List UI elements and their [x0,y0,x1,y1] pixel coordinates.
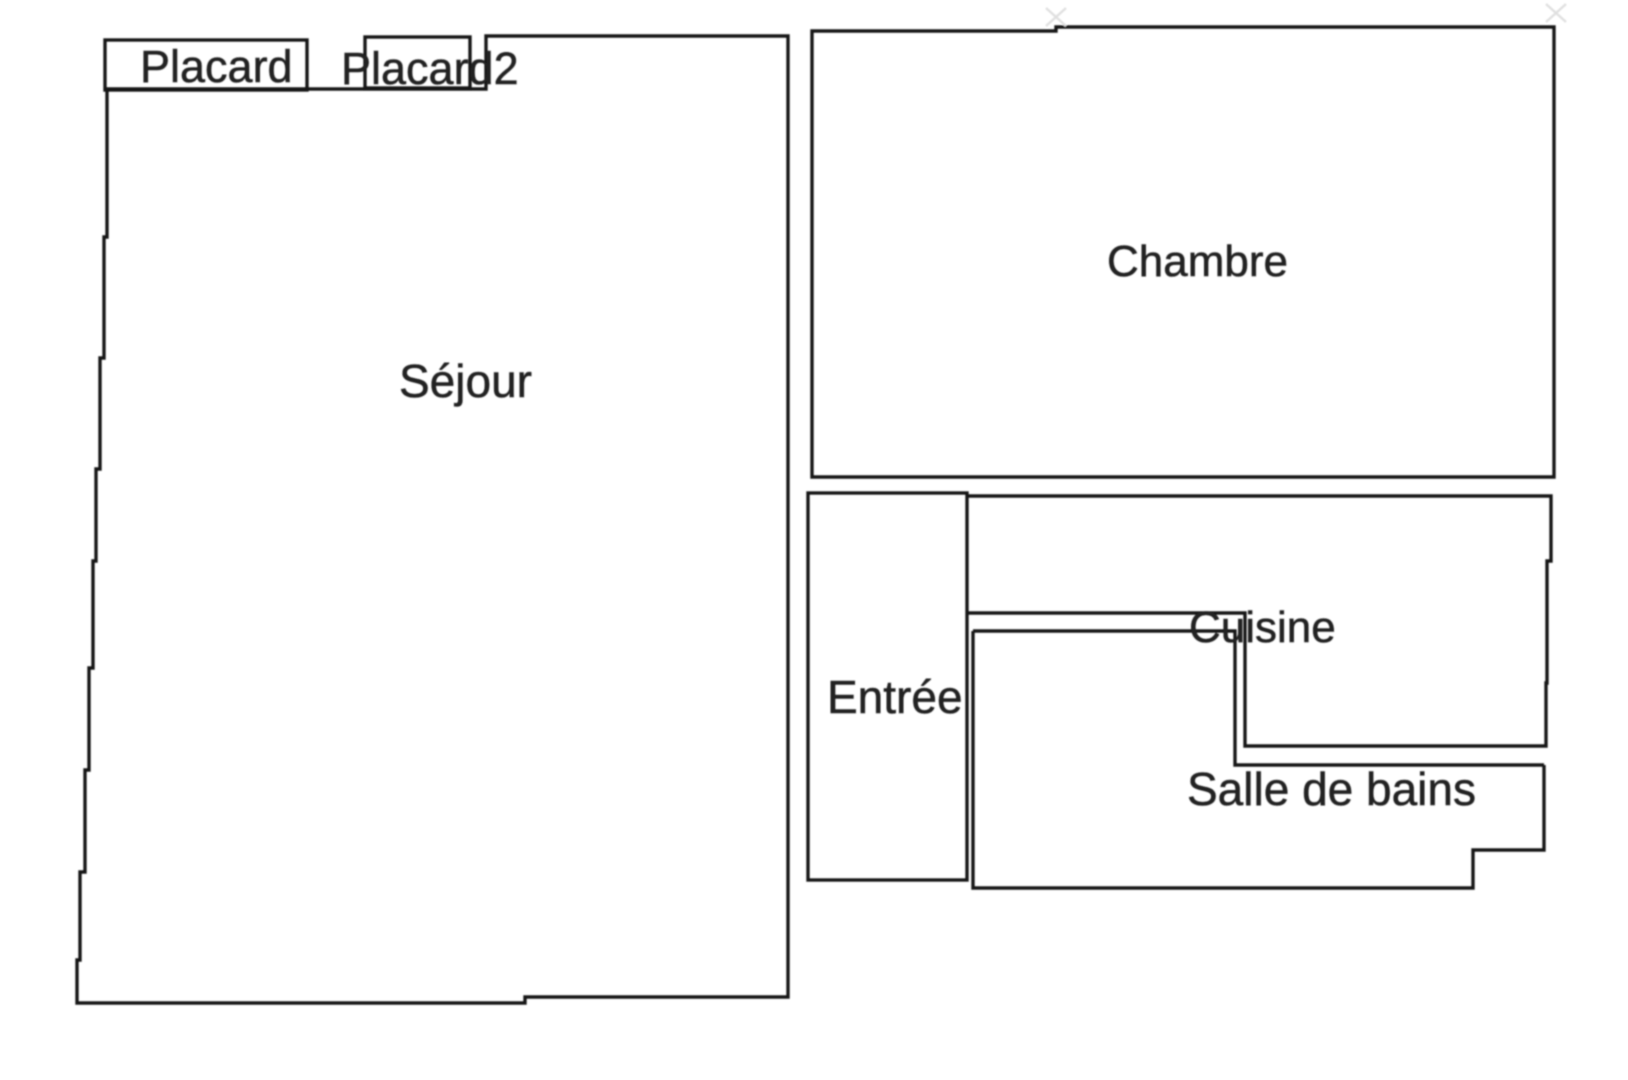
svg-text:Séjour: Séjour [399,355,532,407]
svg-text:Entrée: Entrée [827,671,963,723]
svg-text:Salle de bains: Salle de bains [1187,763,1476,815]
svg-text:Placard: Placard [140,41,293,92]
svg-text:Cuisine: Cuisine [1189,603,1336,652]
svg-text:Placard2: Placard2 [341,43,519,94]
svg-text:Chambre: Chambre [1107,237,1288,286]
